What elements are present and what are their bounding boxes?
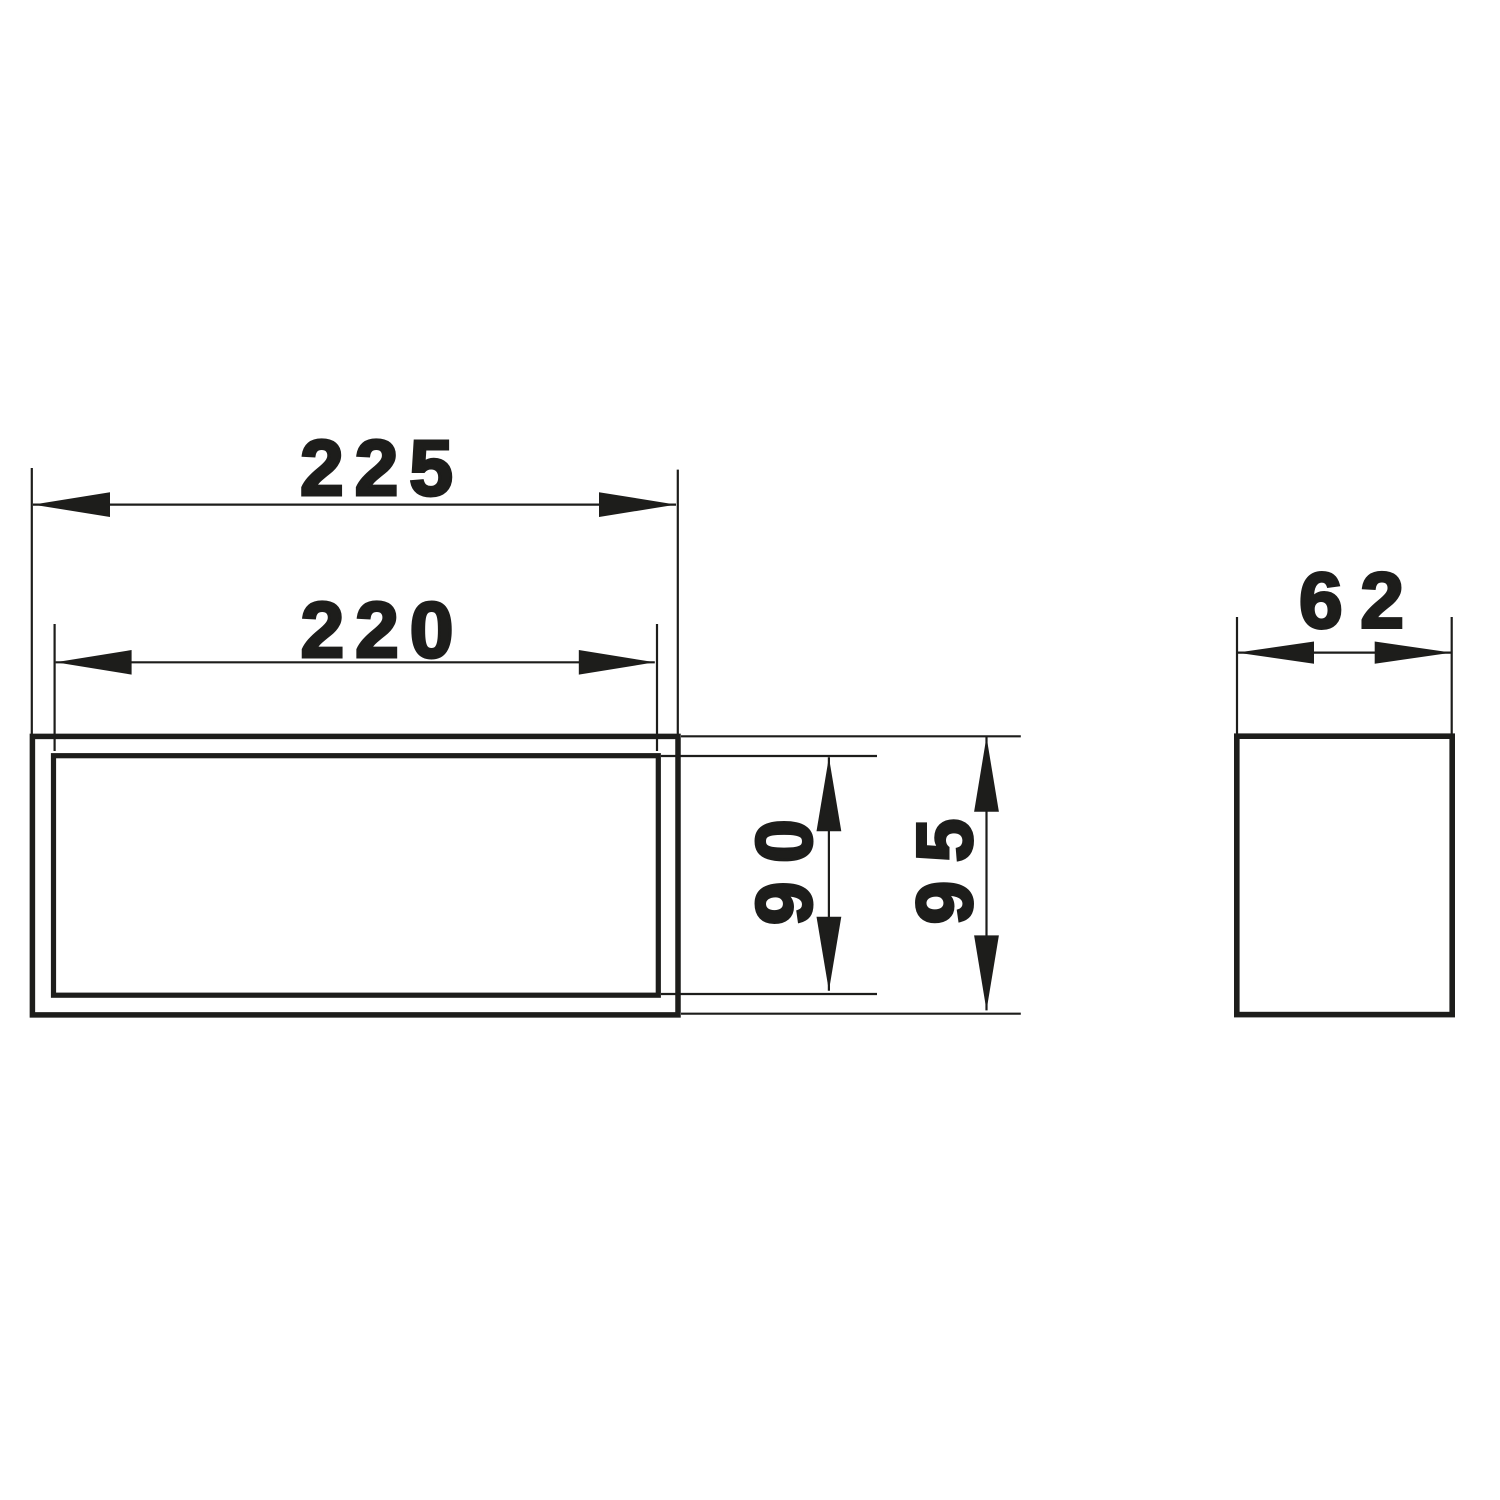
svg-text:225: 225: [300, 424, 453, 512]
svg-text:220: 220: [301, 586, 454, 674]
